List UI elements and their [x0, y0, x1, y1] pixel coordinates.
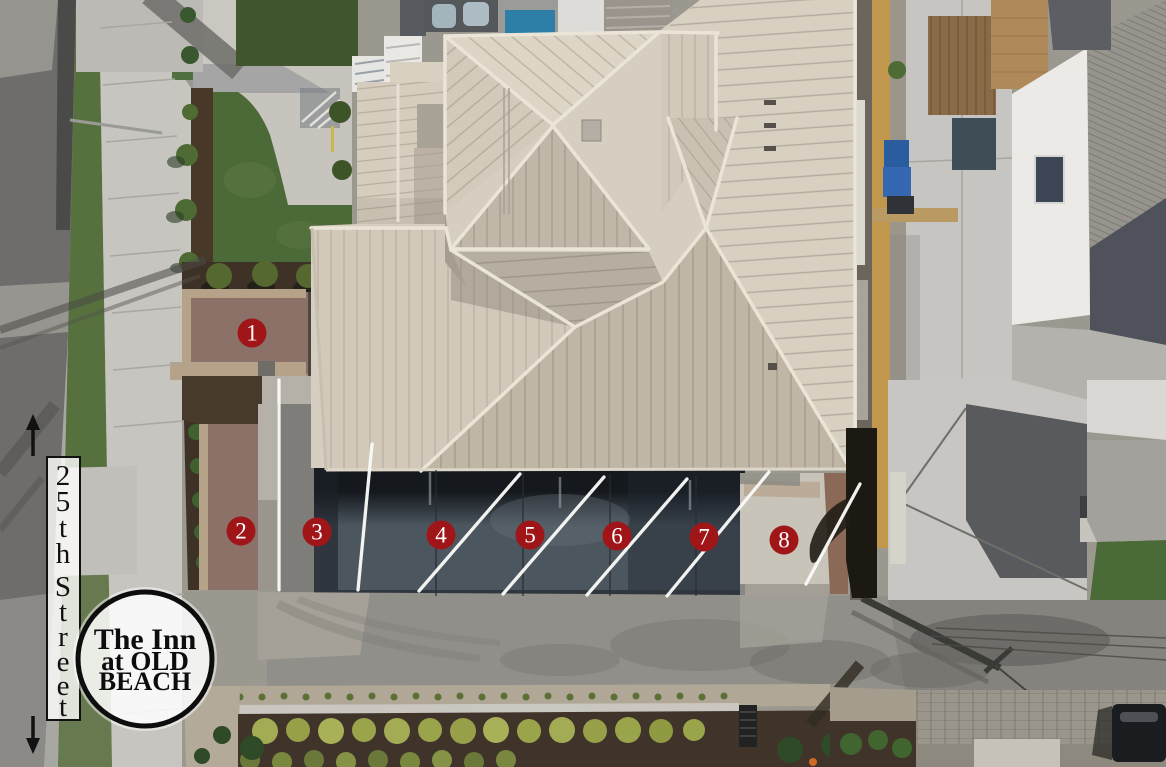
svg-text:t: t	[59, 691, 67, 723]
svg-text:2: 2	[235, 519, 247, 544]
svg-text:3: 3	[311, 520, 323, 545]
svg-text:8: 8	[778, 528, 790, 553]
svg-text:1: 1	[246, 321, 258, 346]
svg-text:5: 5	[524, 523, 536, 548]
svg-text:h: h	[56, 538, 71, 570]
svg-text:BEACH: BEACH	[99, 667, 191, 696]
svg-text:7: 7	[698, 525, 710, 550]
svg-text:6: 6	[611, 524, 623, 549]
svg-text:4: 4	[435, 523, 447, 548]
